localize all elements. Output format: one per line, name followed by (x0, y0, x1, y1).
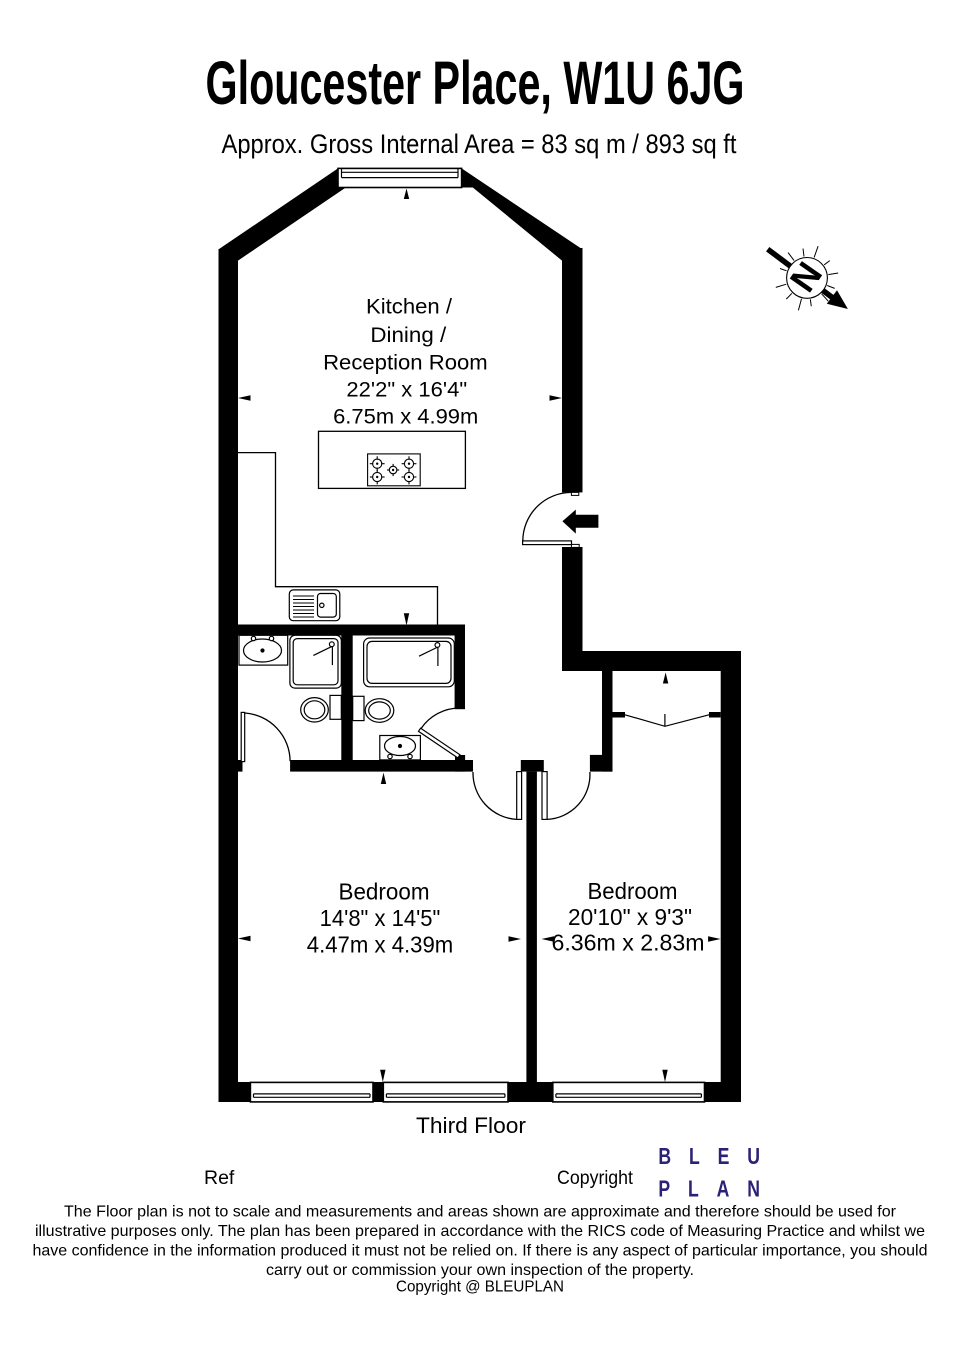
svg-text:BLEU: BLEU (658, 1144, 777, 1170)
svg-text:Bedroom: Bedroom (339, 879, 430, 905)
svg-text:have confidence in the informa: have confidence in the information produ… (33, 1243, 928, 1260)
svg-text:6.36m x 2.83m: 6.36m x 2.83m (552, 930, 705, 956)
svg-text:carry out or commission your o: carry out or commission your own inspect… (266, 1262, 694, 1279)
svg-text:PLAN: PLAN (658, 1176, 777, 1202)
svg-text:Copyright @ BLEUPLAN: Copyright @ BLEUPLAN (396, 1279, 564, 1296)
svg-text:Reception Room: Reception Room (323, 350, 488, 375)
svg-text:Bedroom: Bedroom (588, 878, 678, 904)
svg-text:22'2" x 16'4": 22'2" x 16'4" (346, 377, 467, 402)
svg-text:Copyright: Copyright (557, 1167, 634, 1189)
svg-text:20'10" x 9'3": 20'10" x 9'3" (568, 904, 692, 930)
svg-text:Dining /: Dining / (370, 322, 446, 347)
svg-text:Ref: Ref (204, 1167, 235, 1189)
svg-text:6.75m x 4.99m: 6.75m x 4.99m (333, 404, 478, 429)
svg-text:Approx. Gross Internal Area =: Approx. Gross Internal Area = 83 sq m / … (222, 129, 737, 159)
svg-text:Kitchen /: Kitchen / (366, 294, 452, 319)
svg-text:Third Floor: Third Floor (416, 1113, 527, 1138)
svg-text:14'8" x 14'5": 14'8" x 14'5" (320, 905, 441, 931)
svg-text:illustrative purposes only. Th: illustrative purposes only. The plan has… (35, 1223, 925, 1240)
svg-text:The Floor plan is not to scale: The Floor plan is not to scale and measu… (64, 1204, 897, 1221)
svg-text:Gloucester Place, W1U 6JG: Gloucester Place, W1U 6JG (206, 49, 745, 117)
svg-text:4.47m x 4.39m: 4.47m x 4.39m (307, 931, 454, 957)
